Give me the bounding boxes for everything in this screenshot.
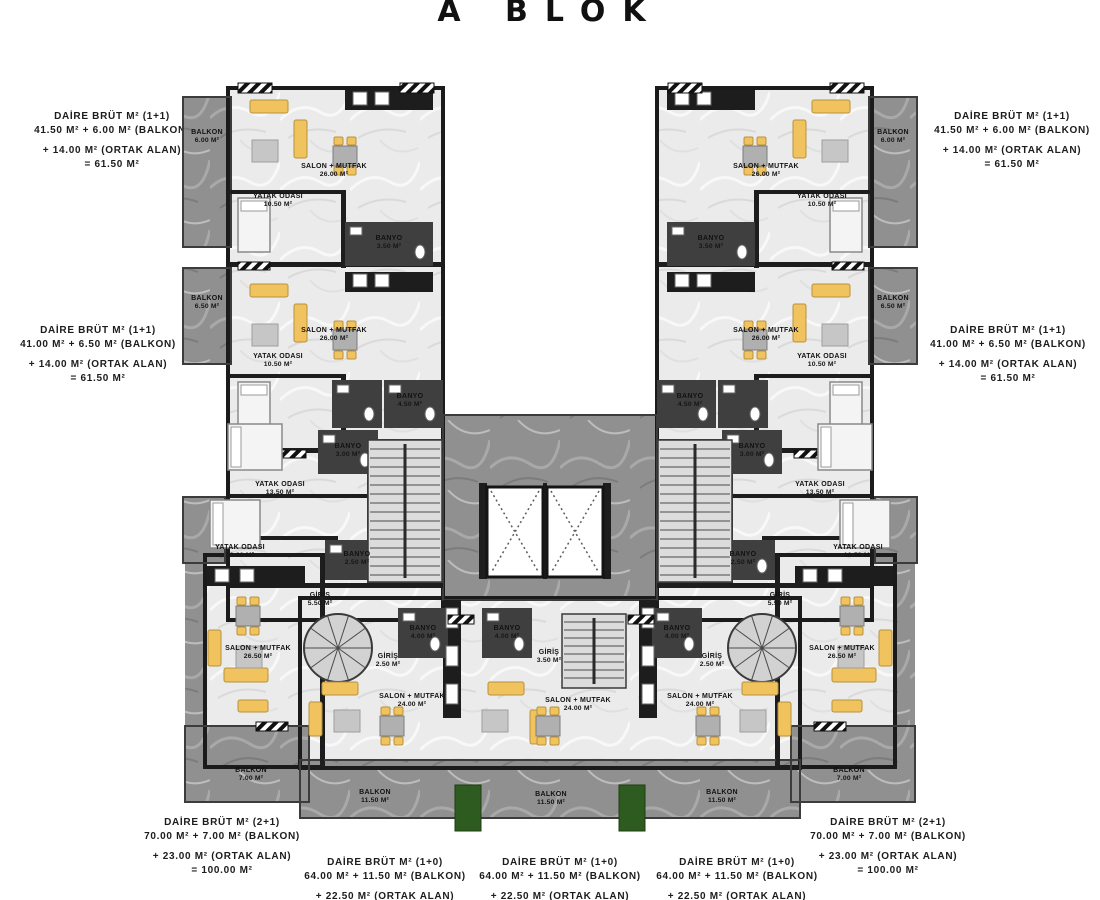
planter [455, 785, 481, 831]
sink-icon [389, 385, 401, 393]
room-label: GİRİŞ [539, 648, 560, 656]
chair-icon [334, 351, 343, 359]
chair-icon [237, 597, 246, 605]
sink-icon [723, 385, 735, 393]
room-label: YATAK ODASI [253, 353, 303, 360]
appliance-icon [215, 569, 229, 582]
room-label: BALKON [535, 791, 567, 798]
rug-icon [334, 710, 360, 732]
room-label: BALKON [235, 767, 267, 774]
appliance-icon [803, 569, 817, 582]
chair-icon [710, 737, 719, 745]
room-area-label: 10.00 M² [226, 552, 255, 559]
room-label: SALON + MUTFAK [225, 645, 291, 652]
room-area-label: 6.00 M² [881, 137, 906, 144]
room-area-label: 4.00 M² [411, 633, 436, 640]
chair-icon [381, 737, 390, 745]
sofa-icon [224, 668, 268, 682]
wall-kitchen [228, 494, 378, 498]
room-area-label: 26.00 M² [752, 171, 781, 178]
hatch-wall [256, 722, 288, 731]
sofa-icon [832, 700, 862, 712]
room-label: YATAK ODASI [255, 481, 305, 488]
rug-icon [740, 710, 766, 732]
room-area-label: 4.00 M² [495, 633, 520, 640]
sofa-icon [322, 682, 358, 695]
room-label: SALON + MUTFAK [301, 327, 367, 334]
room-label: YATAK ODASI [797, 193, 847, 200]
elevator [487, 487, 543, 577]
chair-icon [250, 627, 259, 635]
hatch-wall [668, 83, 702, 93]
room-area-label: 4.00 M² [665, 633, 690, 640]
room-area-label: 2.50 M² [700, 661, 725, 668]
room-label: SALON + MUTFAK [809, 645, 875, 652]
balcony-floor [183, 268, 231, 364]
chair-icon [744, 137, 753, 145]
chair-icon [334, 137, 343, 145]
room-label: BALKON [191, 129, 223, 136]
chair-icon [757, 137, 766, 145]
room-label: GİRİŞ [378, 652, 399, 660]
room-area-label: 3.50 M² [699, 243, 724, 250]
room-label: BALKON [359, 789, 391, 796]
pillow-icon [833, 385, 859, 395]
room-label: SALON + MUTFAK [301, 163, 367, 170]
room-label: BALKON [877, 295, 909, 302]
chair-icon [394, 737, 403, 745]
wall-kitchen [228, 583, 443, 588]
hatch-wall [628, 615, 654, 624]
room-area-label: 26.00 M² [752, 335, 781, 342]
appliance-icon [353, 274, 367, 287]
rug-icon [822, 324, 848, 346]
pillow-icon [843, 503, 853, 545]
room-label: BALKON [191, 295, 223, 302]
chair-icon [550, 707, 559, 715]
hatch-wall [832, 262, 864, 270]
sofa-icon [488, 682, 524, 695]
room-label: SALON + MUTFAK [733, 163, 799, 170]
room-area-label: 26.00 M² [320, 335, 349, 342]
dining-table-icon [536, 716, 560, 736]
balcony-floor [183, 97, 231, 247]
toilet-icon [737, 245, 747, 259]
sofa-icon [309, 702, 322, 736]
room-label: YATAK ODASI [795, 481, 845, 488]
room-area-label: 2.50 M² [376, 661, 401, 668]
room-label: BANYO [410, 625, 437, 632]
room-label: YATAK ODASI [215, 544, 265, 551]
balcony-floor [869, 268, 917, 364]
appliance-icon [446, 646, 458, 666]
chair-icon [710, 707, 719, 715]
chair-icon [854, 597, 863, 605]
toilet-icon [698, 407, 708, 421]
room-label: BANYO [664, 625, 691, 632]
appliance-icon [642, 684, 654, 704]
room-area-label: 11.50 M² [537, 799, 566, 806]
sink-icon [330, 545, 342, 553]
chair-icon [394, 707, 403, 715]
side-terrace [185, 555, 205, 730]
sink-icon [323, 435, 335, 443]
appliance-icon [375, 274, 389, 287]
room-area-label: 4.50 M² [398, 401, 423, 408]
room-label: BALKON [877, 129, 909, 136]
rug-icon [252, 324, 278, 346]
dining-table-icon [696, 716, 720, 736]
room-label: GİRİŞ [310, 591, 331, 599]
floor-plan-page: A BLOK DAİRE BRÜT M² (1+1) 41.50 M² + 6.… [0, 0, 1100, 900]
chair-icon [550, 737, 559, 745]
room-area-label: 5.50 M² [768, 600, 793, 607]
pillow-icon [821, 427, 831, 467]
dining-table-icon [380, 716, 404, 736]
sofa-icon [294, 120, 307, 158]
room-label: SALON + MUTFAK [733, 327, 799, 334]
chair-icon [841, 627, 850, 635]
room-area-label: 7.00 M² [239, 775, 264, 782]
room-label: BANYO [397, 393, 424, 400]
room-area-label: 3.50 M² [537, 657, 562, 664]
rug-icon [252, 140, 278, 162]
sofa-icon [812, 100, 850, 113]
room-area-label: 5.50 M² [308, 600, 333, 607]
sofa-icon [294, 304, 307, 342]
appliance-icon [446, 684, 458, 704]
room-label: SALON + MUTFAK [667, 693, 733, 700]
room-area-label: 13.50 M² [806, 489, 835, 496]
room-area-label: 6.50 M² [881, 303, 906, 310]
room-area-label: 11.50 M² [708, 797, 737, 804]
room-label: BANYO [730, 551, 757, 558]
appliance-icon [697, 92, 711, 105]
toilet-icon [415, 245, 425, 259]
sink-icon [350, 227, 362, 235]
pillow-icon [213, 503, 223, 545]
room-label: BANYO [344, 551, 371, 558]
toilet-icon [364, 407, 374, 421]
room-area-label: 10.50 M² [808, 361, 837, 368]
rug-icon [482, 710, 508, 732]
room-area-label: 4.50 M² [678, 401, 703, 408]
hatch-wall [448, 615, 474, 624]
room-area-label: 26.50 M² [244, 653, 273, 660]
room-label: YATAK ODASI [253, 193, 303, 200]
chair-icon [841, 597, 850, 605]
room-area-label: 3.00 M² [336, 451, 361, 458]
room-label: YATAK ODASI [797, 353, 847, 360]
sofa-icon [250, 284, 288, 297]
chair-icon [854, 627, 863, 635]
hatch-wall [238, 262, 270, 270]
chair-icon [250, 597, 259, 605]
room-area-label: 24.00 M² [686, 701, 715, 708]
toilet-icon [757, 559, 767, 573]
chair-icon [697, 707, 706, 715]
room-label: GİRİŞ [702, 652, 723, 660]
room-area-label: 2.50 M² [345, 559, 370, 566]
room-label: BANYO [376, 235, 403, 242]
appliance-icon [828, 569, 842, 582]
room-area-label: 26.50 M² [828, 653, 857, 660]
appliance-icon [375, 92, 389, 105]
appliance-icon [675, 92, 689, 105]
room-area-label: 10.50 M² [844, 552, 873, 559]
chair-icon [347, 137, 356, 145]
sofa-icon [812, 284, 850, 297]
wall-kitchen [722, 494, 872, 498]
room-area-label: 10.50 M² [808, 201, 837, 208]
wall-kitchen [228, 374, 346, 378]
planter [619, 785, 645, 831]
room-area-label: 6.00 M² [195, 137, 220, 144]
room-area-label: 7.00 M² [837, 775, 862, 782]
rug-icon [822, 140, 848, 162]
sink-icon [657, 613, 669, 621]
sink-icon [672, 227, 684, 235]
chair-icon [537, 737, 546, 745]
chair-icon [537, 707, 546, 715]
side-terrace [895, 555, 915, 730]
room-label: BANYO [698, 235, 725, 242]
hatch-wall [238, 83, 272, 93]
room-label: BANYO [494, 625, 521, 632]
chair-icon [347, 351, 356, 359]
room-label: YATAK ODASI [833, 544, 883, 551]
room-area-label: 10.50 M² [264, 361, 293, 368]
sofa-icon [208, 630, 221, 666]
appliance-icon [642, 646, 654, 666]
dining-table-icon [236, 606, 260, 626]
pillow-icon [231, 427, 241, 467]
hatch-wall [400, 83, 434, 93]
room-label: BANYO [739, 443, 766, 450]
sink-icon [403, 613, 415, 621]
sofa-icon [832, 668, 876, 682]
room-area-label: 6.50 M² [195, 303, 220, 310]
room-area-label: 26.00 M² [320, 171, 349, 178]
room-area-label: 13.50 M² [266, 489, 295, 496]
toilet-icon [764, 453, 774, 467]
wall-kitchen [657, 583, 872, 588]
room-area-label: 11.50 M² [361, 797, 390, 804]
sofa-icon [778, 702, 791, 736]
dining-table-icon [840, 606, 864, 626]
room-area-label: 10.50 M² [264, 201, 293, 208]
appliance-icon [240, 569, 254, 582]
room-label: GİRİŞ [770, 591, 791, 599]
appliance-icon [675, 274, 689, 287]
room-area-label: 24.00 M² [398, 701, 427, 708]
sofa-icon [238, 700, 268, 712]
sofa-icon [793, 304, 806, 342]
sofa-icon [793, 120, 806, 158]
room-label: BALKON [706, 789, 738, 796]
chair-icon [744, 351, 753, 359]
room-label: BANYO [677, 393, 704, 400]
chair-icon [697, 737, 706, 745]
pillow-icon [241, 385, 267, 395]
balcony-floor [869, 97, 917, 247]
appliance-icon [697, 274, 711, 287]
room-label: SALON + MUTFAK [545, 697, 611, 704]
sofa-icon [250, 100, 288, 113]
room-area-label: 24.00 M² [564, 705, 593, 712]
room-area-label: 3.00 M² [740, 451, 765, 458]
elevator [547, 487, 603, 577]
hatch-wall [814, 722, 846, 731]
sofa-icon [879, 630, 892, 666]
hatch-wall [830, 83, 864, 93]
room-area-label: 3.50 M² [377, 243, 402, 250]
sink-icon [487, 613, 499, 621]
sofa-icon [742, 682, 778, 695]
room-label: BALKON [833, 767, 865, 774]
toilet-icon [750, 407, 760, 421]
room-area-label: 2.50 M² [731, 559, 756, 566]
toilet-icon [425, 407, 435, 421]
sink-icon [337, 385, 349, 393]
chair-icon [757, 351, 766, 359]
floor-plan-drawing: BALKON6.00 M²SALON + MUTFAK26.00 M²YATAK… [0, 0, 1100, 900]
chair-icon [381, 707, 390, 715]
room-label: SALON + MUTFAK [379, 693, 445, 700]
sink-icon [662, 385, 674, 393]
pillow-icon [833, 201, 859, 211]
appliance-icon [353, 92, 367, 105]
chair-icon [237, 627, 246, 635]
room-label: BANYO [335, 443, 362, 450]
wall-kitchen [754, 374, 872, 378]
